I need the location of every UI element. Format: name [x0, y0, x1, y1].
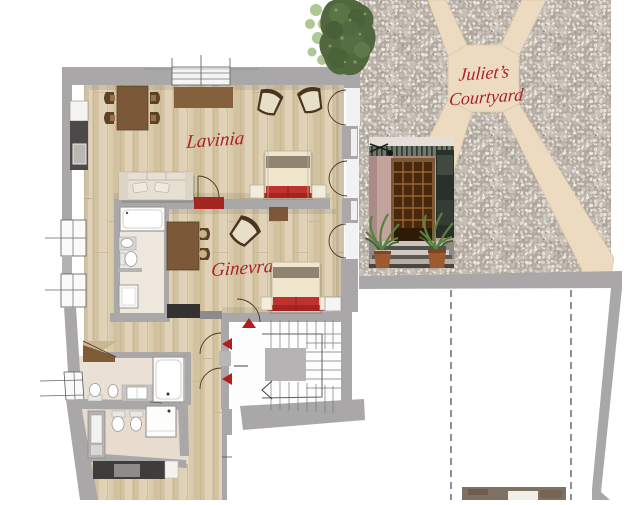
- svg-text:Juliet’s: Juliet’s: [458, 61, 510, 85]
- svg-text:Ginevra: Ginevra: [211, 256, 275, 281]
- svg-text:Lavinia: Lavinia: [185, 128, 245, 153]
